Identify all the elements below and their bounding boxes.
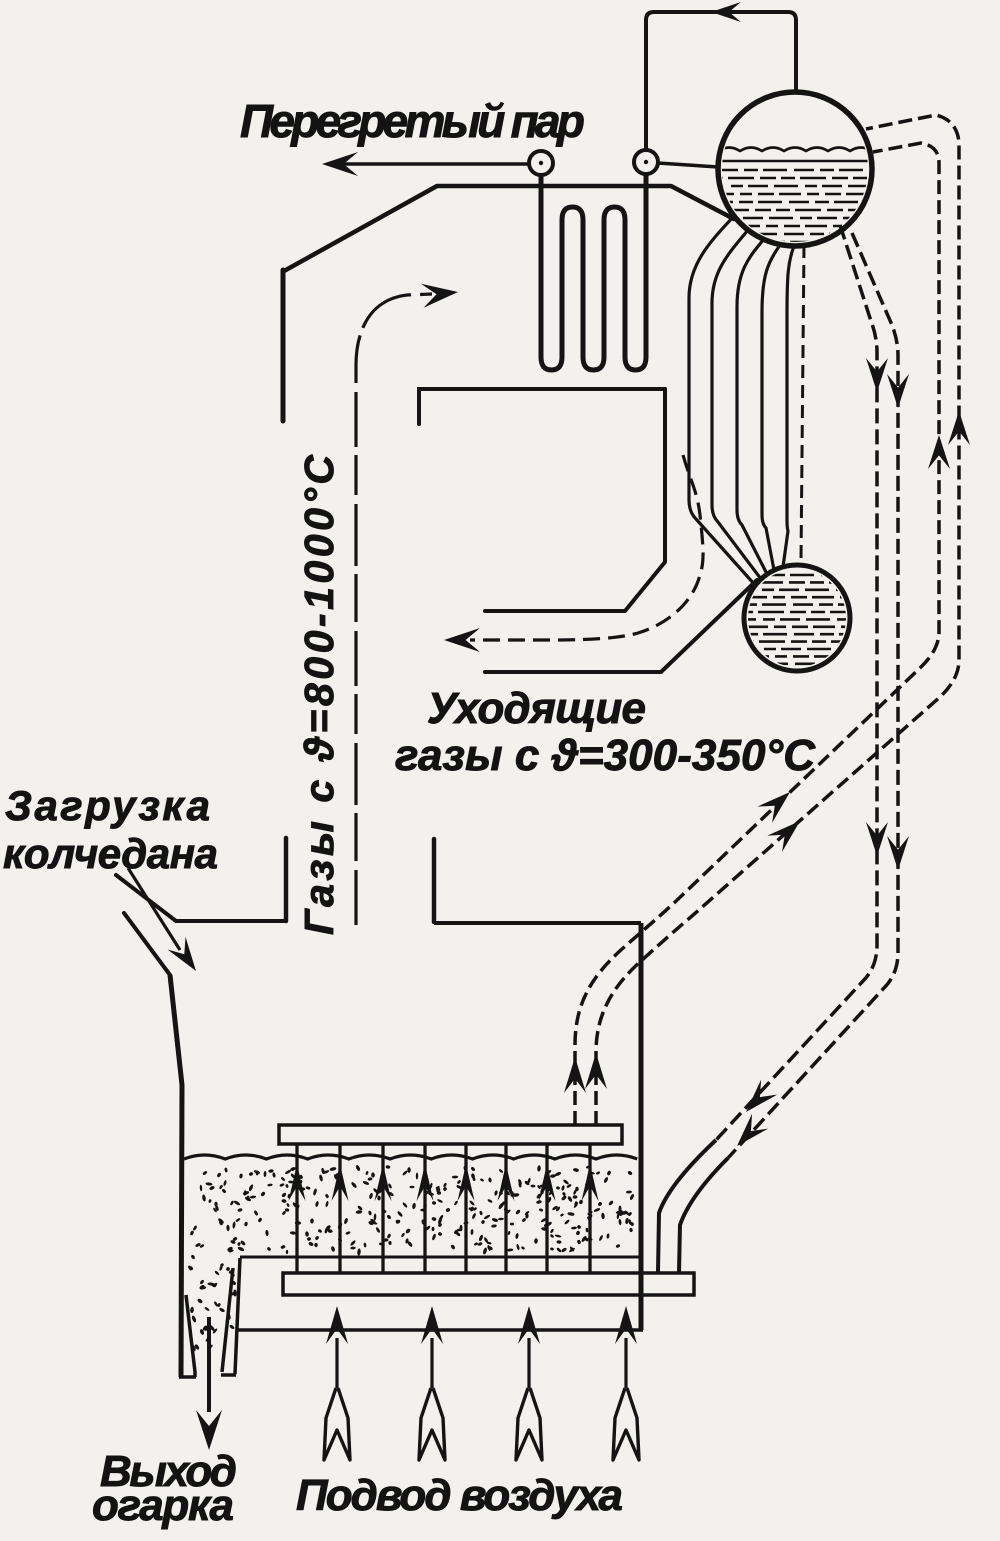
svg-text:колчедана: колчедана bbox=[3, 830, 218, 877]
svg-text:огарка: огарка bbox=[92, 1481, 234, 1530]
svg-text:Газы с ϑ=800-1000°C: Газы с ϑ=800-1000°C bbox=[296, 454, 342, 935]
svg-text:Уходящие: Уходящие bbox=[427, 684, 646, 733]
svg-text:Подвод воздуха: Подвод воздуха bbox=[296, 1471, 623, 1520]
svg-text:Загрузка: Загрузка bbox=[5, 782, 210, 829]
svg-text:газы с ϑ=300-350°C: газы с ϑ=300-350°C bbox=[395, 731, 816, 780]
svg-text:Перегретый пар: Перегретый пар bbox=[240, 95, 585, 147]
